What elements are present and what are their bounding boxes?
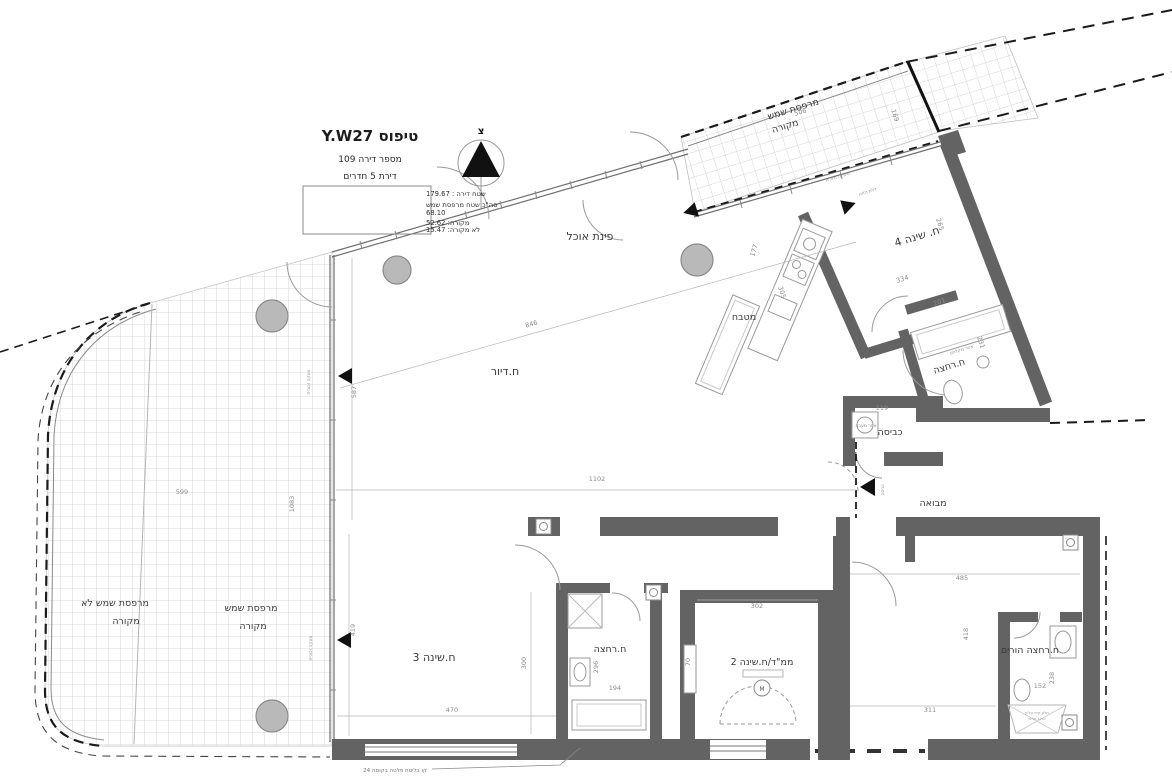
label-uncov-balcony-1: מרפסת שמש לא bbox=[81, 598, 149, 609]
dim-1102: 1102 bbox=[589, 475, 606, 483]
dim-152: 152 bbox=[1034, 682, 1046, 690]
note-window-2: ארגז תריס bbox=[1028, 716, 1046, 721]
floor-plan-canvas: צ טיפוס Y.W27 מספר דירה 109 דירת 5 חדרים… bbox=[0, 0, 1172, 781]
label-dining: פינת אוכל bbox=[567, 230, 614, 243]
arrow-right-bed4 bbox=[840, 196, 858, 214]
label-entrance: כניסה bbox=[881, 484, 886, 496]
note-window-1: חלון קיפ עליון bbox=[1025, 710, 1049, 715]
label-mamad: ממ"ד/ח.שינה 2 bbox=[731, 657, 794, 668]
tiny-annotations: M אזור מקלחון אזור מעבה מעקה זכוכית דלת … bbox=[307, 171, 1049, 721]
dim-311: 311 bbox=[924, 706, 936, 714]
apartment-number: מספר דירה 109 bbox=[338, 155, 401, 165]
property-line-upper bbox=[906, 10, 1172, 62]
kitchen-fixtures bbox=[695, 219, 832, 394]
note-glass-rail-left-1: מעקה זכוכית bbox=[307, 370, 312, 395]
dim-300: 300 bbox=[520, 657, 528, 669]
label-foyer: מבואה bbox=[919, 498, 946, 509]
label-kitchen: מטבח bbox=[732, 312, 756, 323]
balcony-total-value: 68.10 bbox=[426, 209, 445, 217]
label-parents-bath: ח.רחצה הורים bbox=[1001, 645, 1059, 656]
dim-334: 334 bbox=[895, 273, 909, 284]
dim-470: 470 bbox=[446, 706, 458, 714]
dim-587: 587 bbox=[350, 386, 358, 398]
kitchen-counter bbox=[748, 219, 832, 360]
dim-70: 70 bbox=[684, 658, 692, 666]
door-gaps bbox=[365, 451, 1060, 759]
balcony-total-label: סה"כ שטח מרפסת שמש bbox=[426, 201, 498, 209]
wall-posts bbox=[536, 519, 1078, 730]
mamad-m-marker: M bbox=[759, 686, 764, 693]
dim-485: 485 bbox=[956, 574, 968, 582]
dim-296: 296 bbox=[592, 661, 600, 673]
entrance-arrow bbox=[860, 478, 875, 496]
type-label: טיפוס Y.W27 bbox=[321, 127, 419, 145]
dim-238: 238 bbox=[1048, 672, 1056, 684]
dim-302: 302 bbox=[751, 602, 763, 610]
label-left-balcony-2: מקורה bbox=[239, 621, 266, 632]
door-arcs bbox=[287, 132, 1040, 724]
column bbox=[681, 244, 713, 276]
dim-418: 418 bbox=[962, 628, 970, 640]
dim-119: 119 bbox=[876, 404, 888, 412]
note-sliding-door: דלת הזזה bbox=[858, 187, 878, 197]
label-left-balcony-1: מרפסת שמש bbox=[224, 603, 277, 614]
north-label: צ bbox=[478, 126, 485, 137]
dim-194: 194 bbox=[609, 684, 621, 692]
arrow-left-587 bbox=[338, 368, 352, 384]
rooms-count: דירת 5 חדרים bbox=[343, 172, 396, 182]
dim-1083: 1083 bbox=[288, 496, 296, 513]
label-bedroom3: ח.שינה 3 bbox=[412, 651, 455, 664]
floor-plan-svg: צ טיפוס Y.W27 מספר דירה 109 דירת 5 חדרים… bbox=[0, 0, 1172, 781]
label-bathroom: ח.רחצה bbox=[932, 357, 966, 377]
note-glass-rail-left-2: מעקה זכוכית bbox=[309, 636, 314, 661]
top-balcony-floor bbox=[681, 62, 939, 212]
mamad-fixtures bbox=[684, 645, 783, 696]
label-laundry: כביסה bbox=[877, 427, 902, 438]
dim-419: 419 bbox=[349, 624, 357, 636]
property-line-right-h bbox=[1050, 420, 1150, 423]
top-balcony bbox=[681, 62, 939, 212]
note-condenser-area: אזור מעבה bbox=[855, 424, 876, 429]
title-block-box bbox=[303, 186, 431, 234]
label-uncov-balcony-2: מקורה bbox=[112, 616, 139, 627]
apartment-area: שטח דירה : 179.67 bbox=[426, 190, 486, 198]
label-bedroom4: ח. שינה 4 bbox=[893, 224, 941, 250]
dim-177: 177 bbox=[748, 243, 759, 257]
label-living: ח.דיור bbox=[491, 365, 519, 378]
note-beam: קו בליטת פלטה בקומה 24 bbox=[363, 767, 427, 774]
column bbox=[256, 700, 288, 732]
label-bathroom2: ח.רחצה bbox=[594, 644, 627, 655]
bath2-fixtures bbox=[568, 594, 646, 730]
column bbox=[256, 300, 288, 332]
dim-846: 846 bbox=[524, 319, 538, 330]
column bbox=[383, 256, 411, 284]
balcony-uncovered: לא מקורה: 15.47 bbox=[426, 226, 480, 234]
dim-599: 599 bbox=[176, 488, 188, 496]
